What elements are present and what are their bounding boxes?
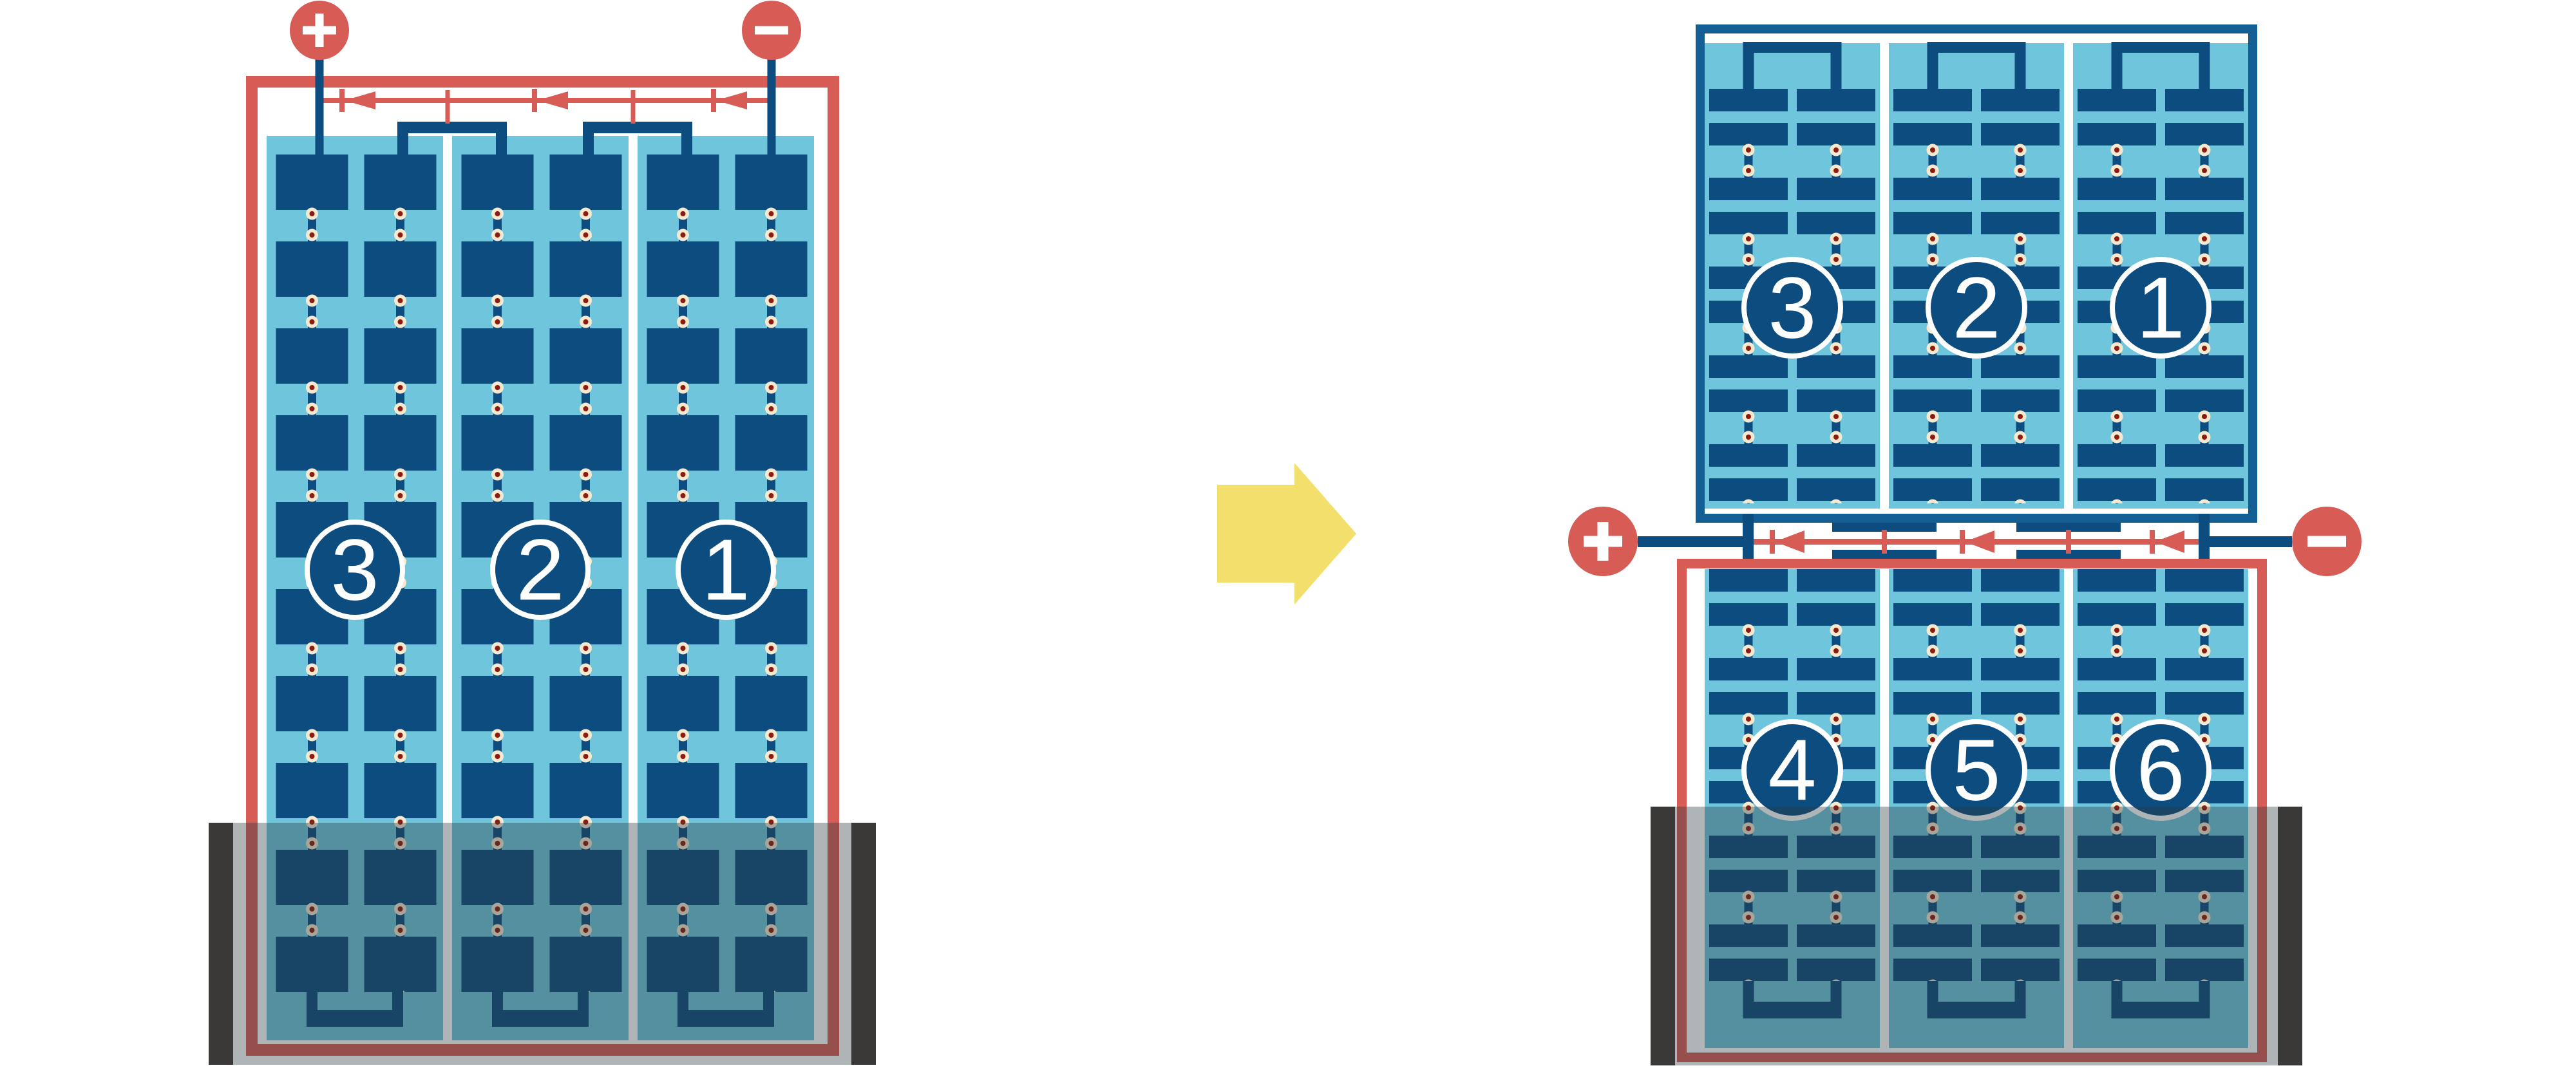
bypass-diode-icon [1770, 530, 1804, 554]
plus-terminal-icon [1568, 507, 1638, 576]
right-modules: 3 2 1 [1568, 29, 2362, 1065]
positive-lead-wire [1638, 536, 1754, 547]
bypass-diode-rail [1754, 530, 2199, 554]
string-number: 2 [1952, 259, 2000, 357]
diagram-canvas: 3 2 1 [0, 0, 2576, 1068]
string-number: 6 [2136, 722, 2184, 819]
string-label: 4 [1744, 722, 1841, 819]
string-label: 6 [2112, 722, 2209, 819]
shade-post-left [209, 823, 233, 1065]
string-label: 5 [1928, 722, 2025, 819]
bypass-diode-icon [1960, 530, 1994, 554]
minus-terminal-icon [2292, 507, 2362, 576]
diode-tap [631, 90, 636, 124]
string-label: 3 [1744, 259, 1841, 357]
shade-post-right [851, 823, 876, 1065]
string-label: 2 [1928, 259, 2025, 357]
right-arrow-icon [1217, 463, 1356, 604]
plus-terminal-icon [290, 1, 349, 60]
string-number: 1 [701, 521, 750, 619]
minus-terminal-icon [742, 1, 801, 60]
string-number: 4 [1768, 722, 1816, 819]
diode-tap [1882, 530, 1887, 554]
string-label: 3 [307, 521, 402, 619]
string-label: 1 [2112, 259, 2209, 357]
shade-post-right [2278, 807, 2302, 1065]
top-module: 3 2 1 [1700, 29, 2253, 518]
string-number: 3 [1768, 259, 1816, 357]
negative-lead-wire [2199, 536, 2292, 547]
string-number: 3 [330, 521, 379, 619]
shading-overlay [1651, 807, 2302, 1065]
positive-lead-wire [316, 42, 324, 193]
shade-post-left [1651, 807, 1675, 1065]
bypass-diode-icon [2150, 530, 2184, 554]
shading-overlay [209, 823, 876, 1065]
string-number: 1 [2136, 259, 2184, 357]
left-module: 3 2 1 [209, 1, 876, 1065]
string-label: 2 [493, 521, 588, 619]
diode-tap [2066, 530, 2071, 554]
diode-tap [446, 90, 450, 124]
string-number: 2 [516, 521, 564, 619]
negative-lead-wire [768, 42, 776, 193]
string-number: 5 [1952, 722, 2000, 819]
string-label: 1 [678, 521, 773, 619]
